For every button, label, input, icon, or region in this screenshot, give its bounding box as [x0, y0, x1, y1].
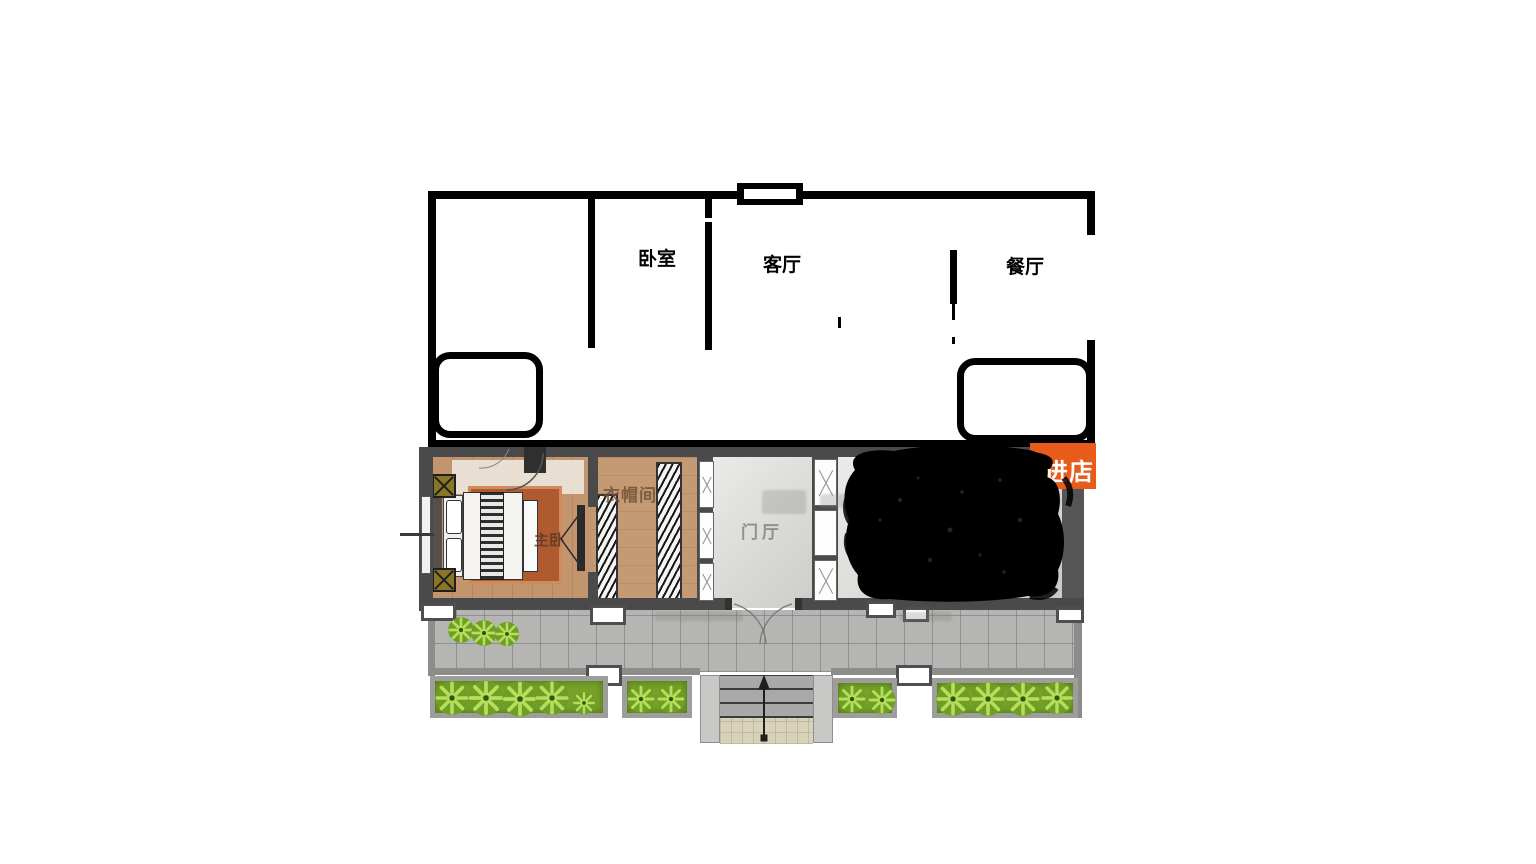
plan-wall-top — [419, 447, 1084, 457]
wardrobe-left — [596, 494, 618, 600]
door-panel-bedroom — [577, 505, 585, 571]
stairs-steps — [720, 675, 813, 718]
sketch-room-label-bedroom: 卧室 — [638, 244, 676, 271]
sketch-wall-interior-c — [950, 250, 957, 304]
sketch-wall-interior-b2 — [705, 222, 712, 350]
watermark-smudge — [820, 494, 856, 508]
wardrobe-right — [656, 462, 682, 600]
sketch-wall-interior-c-thin — [952, 302, 955, 320]
hall-column-cell — [699, 512, 714, 559]
stairs-side-left — [700, 675, 720, 743]
terrace-wall-bottom-4 — [928, 668, 1078, 675]
planting-bed-4 — [932, 678, 1078, 718]
wall-bedroom-cloak-upper — [588, 447, 598, 507]
shop-badge-label: 进店 — [1044, 452, 1094, 487]
plan-room-label-master-bedroom: 主卧 — [534, 529, 564, 550]
shop-badge[interactable]: 进店 — [1030, 443, 1096, 489]
plan-room-label-entry-hall: 门厅 — [741, 518, 783, 543]
sketch-room-label-dining: 餐厅 — [1006, 252, 1044, 279]
nightstand-top — [432, 474, 456, 498]
hall-column-cell — [699, 563, 714, 601]
terrace-wall-bottom-3 — [831, 668, 898, 675]
stairs-landing — [720, 718, 813, 744]
pillar-block — [421, 603, 456, 621]
sketch-wall-interior-a — [588, 198, 595, 348]
bed-headboard — [433, 492, 442, 580]
bed-pillow-1 — [446, 500, 462, 534]
watermark-smudge — [762, 490, 806, 514]
stray-line — [400, 533, 434, 536]
hall-column-cell-plain — [814, 510, 837, 556]
planting-bed-3 — [833, 678, 897, 718]
pillar-block — [896, 665, 932, 686]
watermark-smudge — [655, 612, 743, 621]
sketch-rounded-rect-right — [957, 358, 1093, 442]
nightstand-bottom — [432, 568, 456, 592]
pillar-block — [590, 605, 626, 625]
sketch-wall-interior-b1 — [705, 198, 712, 218]
hall-column-cell — [814, 560, 837, 601]
planting-bed-1 — [430, 676, 608, 718]
watermark-smudge — [900, 612, 952, 621]
hall-column-cell — [699, 461, 714, 508]
bed-runner — [480, 492, 504, 580]
sketch-wall-right-upper — [1087, 191, 1095, 235]
stairs-side-right — [813, 675, 833, 743]
plan-wall-top-stub — [524, 447, 546, 473]
pillar-block — [866, 601, 896, 618]
sketch-room-label-living: 客厅 — [763, 250, 801, 277]
sketch-window — [737, 183, 803, 205]
terrace-wall-bottom-1 — [428, 668, 590, 675]
terrace-paving — [428, 610, 1082, 672]
hall-column-cell — [876, 458, 903, 503]
bed-pillow-2 — [446, 538, 462, 572]
sketch-tick-2 — [952, 337, 955, 344]
sketch-tick-1 — [838, 317, 841, 328]
planting-bed-2 — [622, 676, 692, 718]
floorplan-screenshot: 卧室 客厅 餐厅 — [0, 0, 1536, 864]
pillar-block — [1056, 607, 1084, 623]
terrace-wall-bottom-2 — [622, 668, 700, 675]
plan-room-label-cloakroom: 衣帽间 — [603, 481, 657, 506]
sketch-rounded-rect-left — [432, 352, 543, 438]
